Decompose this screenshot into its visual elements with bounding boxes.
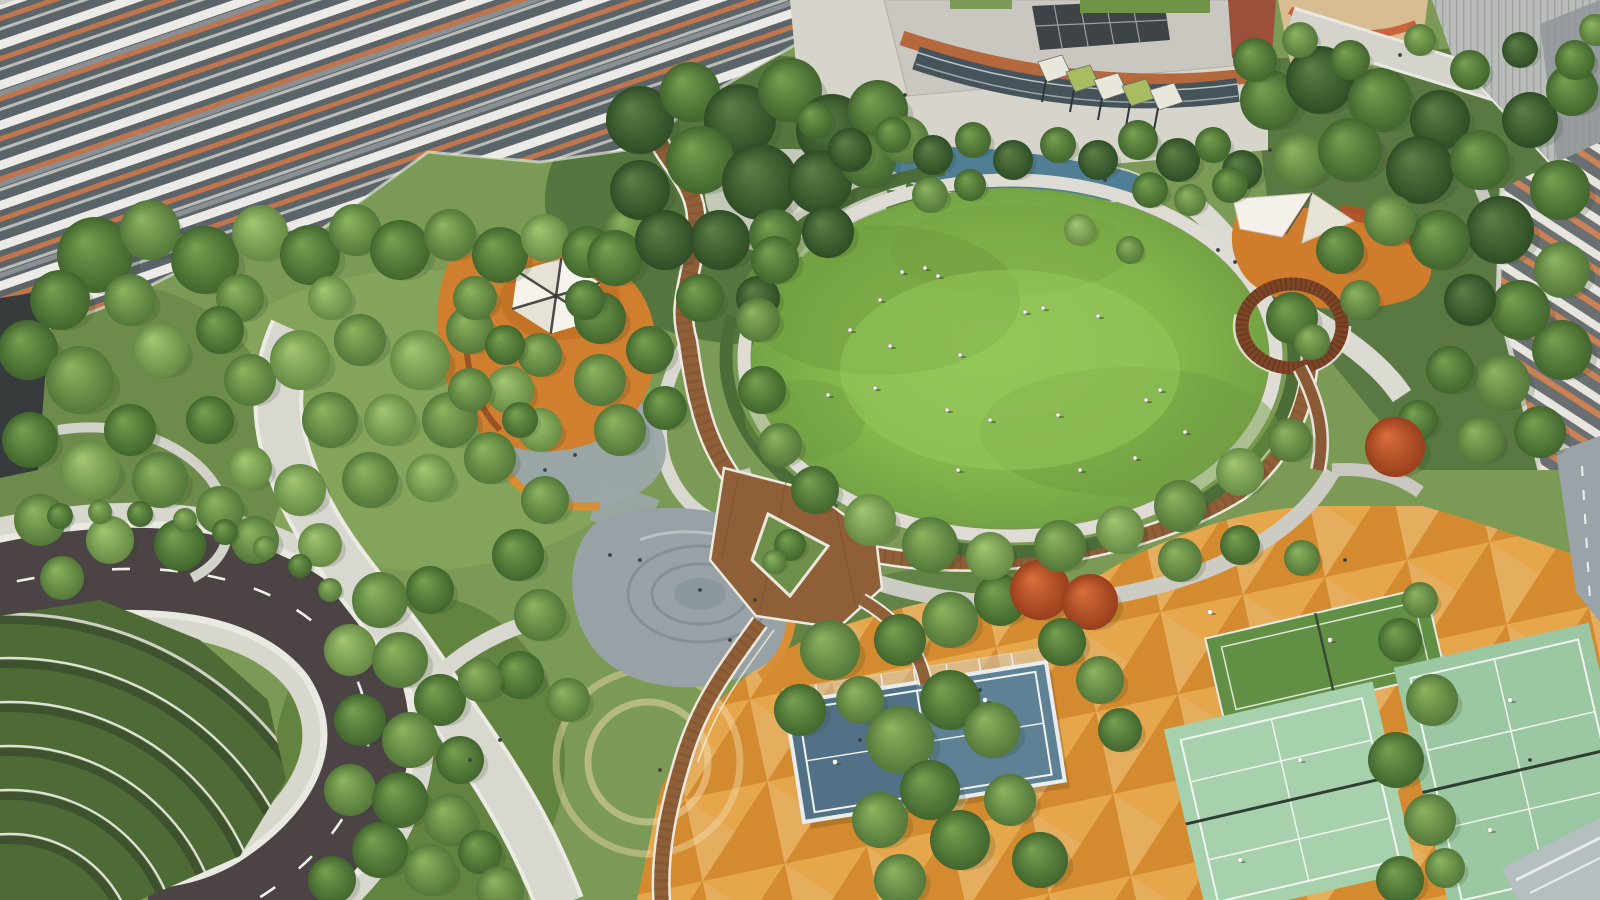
tree-canopy	[913, 135, 953, 175]
scene-canvas	[0, 0, 1600, 900]
person-on-lawn	[936, 274, 940, 278]
person-on-lawn	[923, 266, 927, 270]
tree-canopy	[930, 810, 990, 870]
person-on-path	[658, 768, 662, 772]
person-on-lawn	[1056, 413, 1060, 417]
tree-canopy	[802, 206, 854, 258]
tree-canopy	[86, 516, 134, 564]
tree-canopy	[1116, 236, 1144, 264]
tree-canopy	[643, 386, 687, 430]
tree-canopy	[1282, 22, 1318, 58]
person-on-lawn	[848, 328, 852, 332]
tree-canopy	[676, 274, 724, 322]
tree-canopy	[1294, 324, 1330, 360]
tree-canopy	[1132, 172, 1168, 208]
tree-canopy	[1118, 120, 1158, 160]
person-on-path	[1528, 758, 1532, 762]
tree-canopy	[1034, 520, 1086, 572]
tree-canopy	[828, 128, 872, 172]
tree-canopy	[228, 446, 272, 490]
tree-canopy	[382, 712, 438, 768]
tree-canopy	[334, 314, 386, 366]
court-player	[1298, 758, 1303, 763]
person-on-path	[543, 468, 547, 472]
tree-canopy	[372, 632, 428, 688]
tree-canopy	[1076, 656, 1124, 704]
court-player	[1238, 858, 1243, 863]
tree-canopy	[521, 476, 569, 524]
tree-canopy	[232, 205, 288, 261]
person-on-path	[1343, 558, 1347, 562]
tree-canopy	[1318, 118, 1382, 182]
tree-canopy	[60, 440, 120, 500]
person-on-path	[468, 758, 472, 762]
tree-canopy	[1450, 130, 1510, 190]
court-player	[1488, 828, 1493, 833]
tree-canopy	[966, 532, 1014, 580]
tree-canopy	[1220, 525, 1260, 565]
tree-canopy	[404, 844, 456, 896]
person-on-lawn	[1041, 306, 1045, 310]
tree-canopy	[736, 298, 780, 342]
person-on-path	[498, 738, 502, 742]
tree-canopy	[47, 503, 73, 529]
person-on-lawn	[826, 393, 830, 397]
court-player	[983, 698, 988, 703]
tree-canopy	[1364, 194, 1416, 246]
tree-canopy	[1064, 214, 1096, 246]
person-on-lawn	[1158, 388, 1162, 392]
person-on-path	[573, 453, 577, 457]
tree-canopy	[458, 658, 502, 702]
person-on-lawn	[1144, 398, 1148, 402]
tree-canopy	[874, 614, 926, 666]
person-on-lawn	[1023, 310, 1027, 314]
tree-canopy	[1216, 448, 1264, 496]
tree-canopy	[1502, 32, 1538, 68]
person-on-lawn	[878, 298, 882, 302]
tree-canopy	[2, 412, 58, 468]
tree-canopy	[1368, 732, 1424, 788]
person-on-path	[728, 638, 732, 642]
person-on-lawn	[1096, 314, 1100, 318]
tree-canopy	[1174, 184, 1206, 216]
tree-canopy	[334, 694, 386, 746]
tree-canopy	[485, 325, 525, 365]
person-on-path	[638, 558, 642, 562]
tree-canopy	[626, 326, 674, 374]
tree-canopy	[318, 578, 342, 602]
tree-canopy	[1098, 708, 1142, 752]
tree-canopy	[1406, 674, 1458, 726]
tree-canopy	[288, 554, 312, 578]
tree-canopy	[342, 452, 398, 508]
tree-canopy	[352, 572, 408, 628]
person-on-lawn	[888, 344, 892, 348]
court-player	[1208, 610, 1213, 615]
tree-canopy	[372, 772, 428, 828]
tree-canopy	[844, 494, 896, 546]
tree-canopy	[88, 500, 112, 524]
tree-canopy	[492, 529, 544, 581]
person-on-lawn	[900, 270, 904, 274]
tree-canopy	[212, 519, 238, 545]
green-roof-strip	[1080, 0, 1210, 13]
person-on-lawn	[1133, 456, 1137, 460]
tree-canopy	[546, 678, 590, 722]
tree-canopy	[514, 589, 566, 641]
tree-canopy	[1532, 320, 1592, 380]
tree-canopy	[308, 276, 352, 320]
tree-canopy	[1233, 38, 1277, 82]
tree-canopy	[406, 566, 454, 614]
tree-canopy	[324, 764, 376, 816]
tree-canopy	[1474, 354, 1530, 410]
tree-canopy	[40, 556, 84, 600]
tree-canopy	[390, 330, 450, 390]
tree-canopy	[955, 122, 991, 158]
tree-canopy	[424, 209, 476, 261]
person-on-path	[978, 688, 982, 692]
person-on-path	[1268, 148, 1272, 152]
tree-canopy	[132, 452, 188, 508]
person-on-path	[698, 588, 702, 592]
bowl-center	[674, 578, 726, 610]
tree-canopy	[800, 620, 860, 680]
tree-canopy	[1378, 618, 1422, 662]
green-roof-strip-2	[950, 0, 1012, 9]
tree-canopy	[132, 322, 188, 378]
tree-canopy	[1444, 274, 1496, 326]
tree-canopy	[1365, 417, 1425, 477]
tree-canopy	[852, 792, 908, 848]
tree-canopy	[472, 227, 528, 283]
tree-canopy	[270, 330, 330, 390]
tree-canopy	[1402, 582, 1438, 618]
person-on-path	[858, 738, 862, 742]
tree-canopy	[186, 396, 234, 444]
tree-canopy	[324, 624, 376, 676]
tree-canopy	[902, 517, 958, 573]
court-player	[833, 760, 838, 765]
person-on-lawn	[1078, 468, 1082, 472]
tree-canopy	[104, 274, 156, 326]
tree-canopy	[635, 210, 695, 270]
person-on-lawn	[956, 468, 960, 472]
tree-canopy	[352, 822, 408, 878]
person-on-path	[1216, 248, 1220, 252]
tree-canopy	[1514, 406, 1566, 458]
tree-canopy	[173, 508, 197, 532]
tree-canopy	[594, 404, 646, 456]
tree-canopy	[1426, 346, 1474, 394]
tree-canopy	[406, 454, 454, 502]
tree-canopy	[364, 394, 416, 446]
person-on-lawn	[873, 386, 877, 390]
tree-canopy	[565, 280, 605, 320]
tree-canopy	[1555, 40, 1595, 80]
person-on-path	[753, 598, 757, 602]
tree-canopy	[1268, 418, 1312, 462]
tree-canopy	[984, 774, 1036, 826]
tree-canopy	[436, 736, 484, 784]
tree-canopy	[120, 200, 180, 260]
tree-canopy	[1212, 167, 1248, 203]
tree-canopy	[738, 366, 786, 414]
tree-canopy	[302, 392, 358, 448]
tree-canopy	[1386, 136, 1454, 204]
tree-canopy	[1038, 618, 1086, 666]
tree-canopy	[127, 501, 153, 527]
tree-canopy	[1404, 794, 1456, 846]
tree-canopy	[1450, 50, 1490, 90]
person-on-lawn	[958, 353, 962, 357]
tree-canopy	[1425, 848, 1465, 888]
tree-canopy	[1466, 196, 1534, 264]
tree-canopy	[1195, 127, 1231, 163]
tree-canopy	[1330, 40, 1370, 80]
tree-canopy	[954, 169, 986, 201]
tree-canopy	[1154, 480, 1206, 532]
tree-canopy	[274, 464, 326, 516]
tree-canopy	[690, 210, 750, 270]
person-on-lawn	[988, 418, 992, 422]
tree-canopy	[797, 102, 833, 138]
tree-canopy	[502, 402, 538, 438]
tree-canopy	[993, 140, 1033, 180]
tree-canopy	[464, 432, 516, 484]
court-player	[1508, 698, 1513, 703]
tree-canopy	[224, 354, 276, 406]
tree-canopy	[574, 354, 626, 406]
tree-canopy	[1456, 416, 1504, 464]
tree-canopy	[46, 346, 114, 414]
person-on-path	[1398, 53, 1402, 57]
tree-canopy	[253, 536, 277, 560]
tree-canopy	[453, 276, 497, 320]
tree-canopy	[912, 177, 948, 213]
tree-canopy	[722, 144, 798, 220]
tree-canopy	[875, 117, 911, 153]
tree-canopy	[922, 592, 978, 648]
lawn-highlight	[840, 270, 1180, 470]
tree-canopy	[370, 220, 430, 280]
tree-canopy	[587, 230, 643, 286]
tree-canopy	[1530, 160, 1590, 220]
tree-canopy	[1156, 138, 1200, 182]
tree-canopy	[1096, 506, 1144, 554]
aerial-park-rendering	[0, 0, 1600, 900]
tree-canopy	[1158, 538, 1202, 582]
tree-canopy	[791, 466, 839, 514]
tree-canopy	[762, 550, 786, 574]
tree-canopy	[448, 368, 492, 412]
person-on-lawn	[945, 408, 949, 412]
tree-canopy	[900, 760, 960, 820]
court-player	[1328, 638, 1333, 643]
person-on-path	[903, 93, 907, 97]
tree-canopy	[964, 702, 1020, 758]
tree-canopy	[1012, 832, 1068, 888]
person-on-path	[608, 553, 612, 557]
person-on-lawn	[1183, 430, 1187, 434]
tree-canopy	[1404, 24, 1436, 56]
tree-canopy	[751, 236, 799, 284]
tree-canopy	[1340, 280, 1380, 320]
person-on-path	[1103, 178, 1107, 182]
person-on-path	[1233, 260, 1237, 264]
tree-canopy	[1284, 540, 1320, 576]
tree-canopy	[196, 306, 244, 354]
tree-canopy	[1316, 226, 1364, 274]
tree-canopy	[1534, 242, 1590, 298]
tree-canopy	[104, 404, 156, 456]
tree-canopy	[1040, 127, 1076, 163]
tree-canopy	[1078, 140, 1118, 180]
tree-canopy	[30, 270, 90, 330]
tree-canopy	[774, 684, 826, 736]
tree-canopy	[521, 214, 569, 262]
tree-canopy	[758, 423, 802, 467]
